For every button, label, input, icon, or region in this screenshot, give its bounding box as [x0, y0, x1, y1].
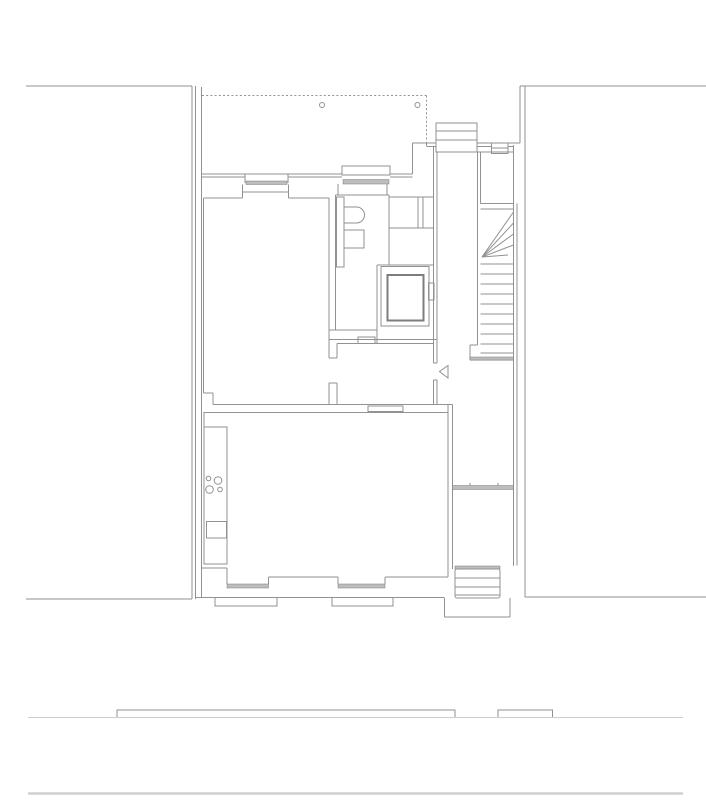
elevator	[358, 265, 434, 344]
vestibule-pg	[440, 366, 449, 379]
stair-hall	[436, 123, 508, 154]
bathroom-r	[337, 197, 345, 267]
stair-hall-r	[436, 123, 477, 152]
kitchen-living-r	[227, 584, 269, 588]
corridor-entrance-r	[453, 486, 514, 490]
bedroom	[204, 198, 338, 405]
elevator-r	[358, 337, 375, 344]
floor-plan-canvas	[0, 0, 706, 800]
right-neighbor-building	[520, 86, 706, 597]
stairs-l	[482, 234, 514, 257]
site-context-r	[117, 710, 455, 718]
bathroom-r	[344, 230, 364, 248]
kitchen-living-room	[196, 405, 453, 607]
bathroom-p	[344, 207, 365, 223]
facade-r	[343, 180, 389, 185]
stairs-l	[482, 212, 514, 257]
terrace-c	[415, 103, 420, 108]
kitchen-living-r	[332, 598, 393, 607]
elevator-r	[388, 275, 424, 321]
site-context-lines	[28, 710, 683, 794]
bathroom	[329, 195, 389, 330]
facade-r	[246, 181, 287, 185]
shower-room	[389, 197, 434, 228]
kitchen-living-r	[368, 406, 403, 412]
floor-plan-page	[0, 0, 706, 800]
terrace-outline	[202, 96, 427, 144]
kitchen-living-r	[207, 522, 227, 539]
entrance-corridor	[445, 405, 514, 618]
stairs-l	[482, 223, 514, 257]
corridor-entrance-r	[455, 569, 500, 598]
facade-r	[342, 166, 390, 175]
terrace-c	[320, 103, 325, 108]
kitchen-living-r	[204, 427, 227, 564]
kitchen-living-r	[215, 598, 277, 607]
kitchen-living-r	[338, 584, 385, 588]
staircase	[470, 145, 517, 566]
site-context-r	[498, 710, 553, 718]
stairs-r	[470, 357, 514, 360]
left-neighbor-building	[26, 86, 202, 599]
